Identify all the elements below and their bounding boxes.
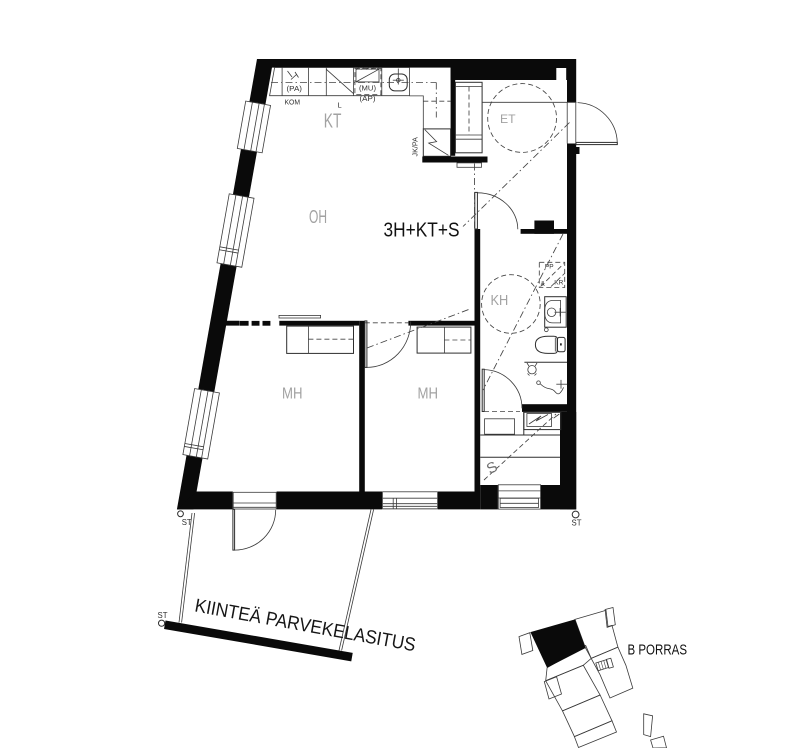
svg-text:&: & xyxy=(541,280,546,287)
svg-text:L: L xyxy=(338,101,342,110)
svg-text:(AP): (AP) xyxy=(360,94,377,103)
svg-text:B PORRAS: B PORRAS xyxy=(628,643,688,659)
svg-text:JK/PA: JK/PA xyxy=(411,137,420,157)
svg-text:KOM: KOM xyxy=(285,98,301,107)
svg-text:KH: KH xyxy=(491,293,509,309)
svg-text:KR: KR xyxy=(554,280,563,287)
svg-text:ST: ST xyxy=(572,519,582,528)
svg-text:MH: MH xyxy=(282,385,303,402)
svg-text:3H+KT+S: 3H+KT+S xyxy=(384,219,460,242)
svg-text:ST: ST xyxy=(182,518,192,527)
svg-text:OH: OH xyxy=(309,207,327,227)
svg-text:MH: MH xyxy=(418,385,439,402)
svg-text:ET: ET xyxy=(500,112,516,126)
svg-text:ST: ST xyxy=(158,611,168,620)
svg-text:(MU): (MU) xyxy=(359,84,376,93)
svg-text:(PA): (PA) xyxy=(287,84,303,93)
svg-text:PP: PP xyxy=(545,264,554,271)
svg-text:KT: KT xyxy=(324,110,342,133)
